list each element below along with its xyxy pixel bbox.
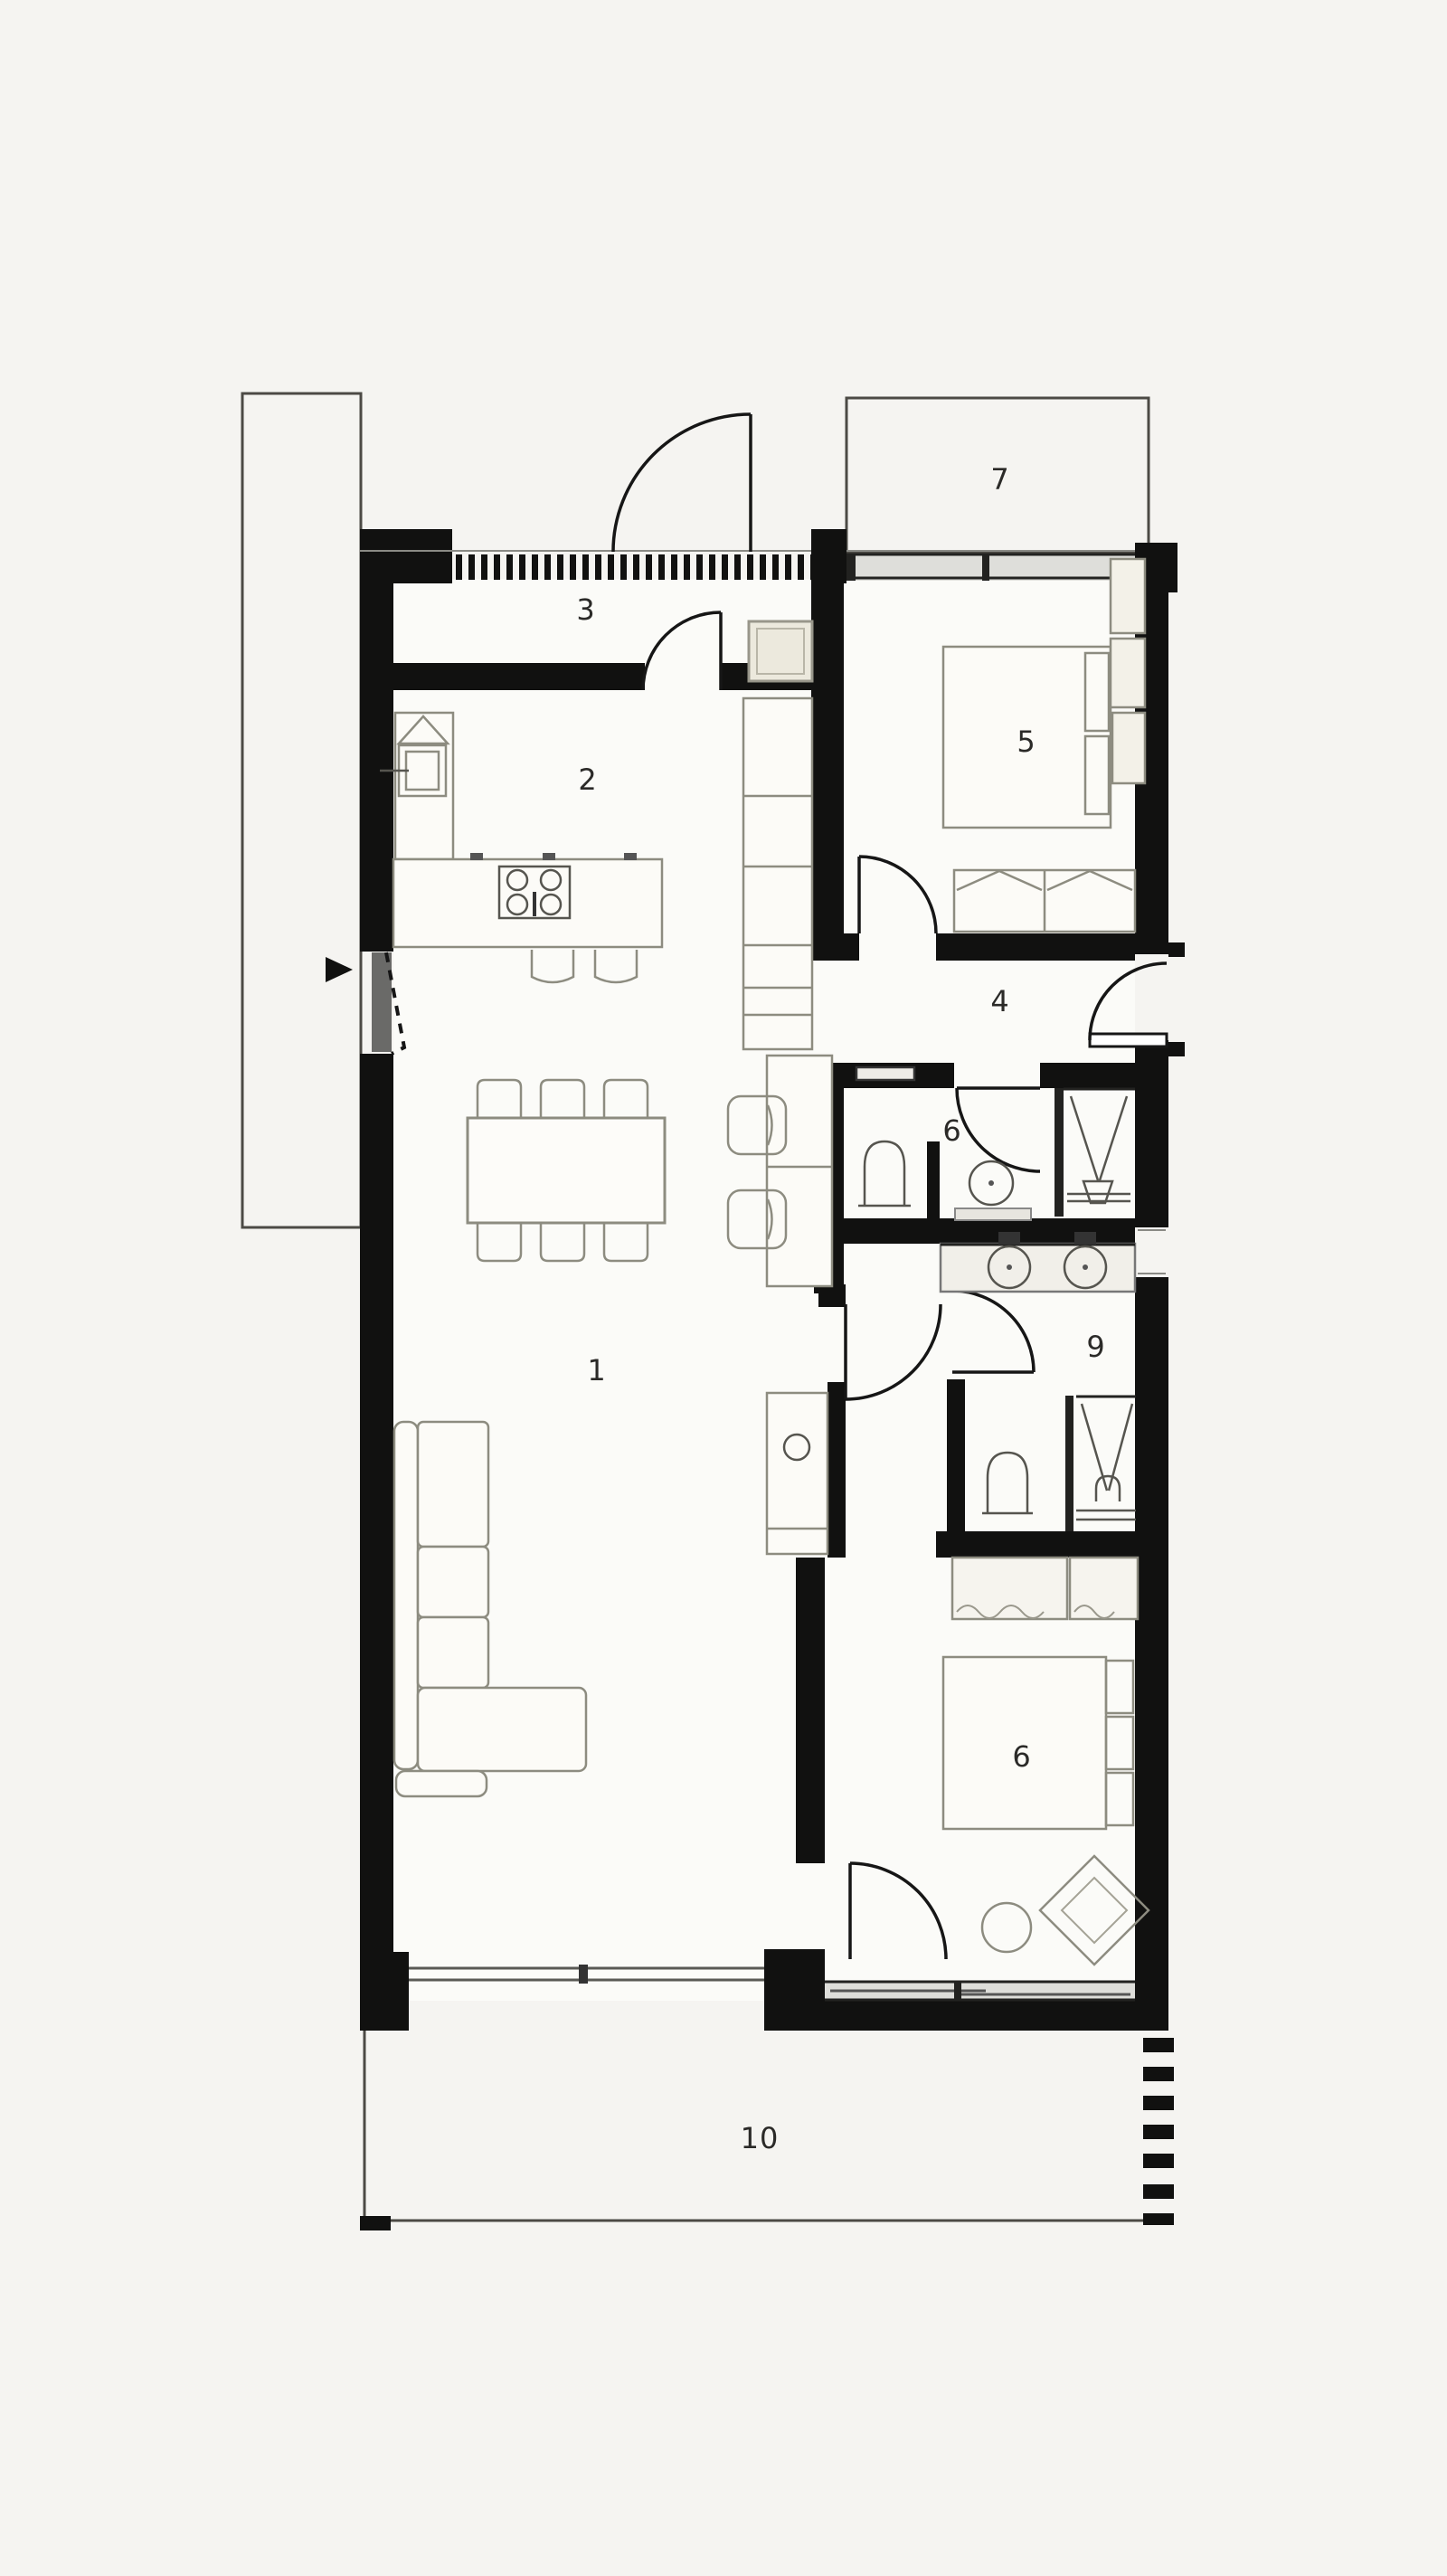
entry-arrow-icon (326, 957, 353, 982)
label-kitchen: 2 (578, 762, 597, 797)
bed-second-icon (943, 1657, 1133, 1829)
window-band-bedroom-south (825, 1981, 1135, 2001)
label-bathroom: 6 (942, 1113, 961, 1148)
floor-plan-page: 1 2 3 4 5 6 7 6 9 10 (0, 0, 1447, 2576)
tall-cabinet-column (743, 698, 812, 1049)
storage-cabinet-lower (767, 1393, 828, 1554)
bathroom-shelf (856, 1067, 914, 1080)
floor-plan-drawing: 1 2 3 4 5 6 7 6 9 10 (0, 0, 1447, 2576)
label-hallway: 4 (990, 984, 1009, 1018)
label-bedroom-second: 6 (1012, 1739, 1031, 1774)
wardrobe-bedroom-second (952, 1558, 1138, 1619)
entry-closet (749, 621, 812, 681)
wardrobe-bedroom-main (954, 870, 1135, 932)
door-main-top (613, 414, 751, 552)
label-bedroom-main: 5 (1017, 724, 1036, 759)
kitchen-island (393, 853, 662, 947)
window-band-bedroom-top (846, 554, 1151, 581)
bedside-column (1111, 559, 1145, 783)
dining-table (468, 1118, 665, 1223)
label-entry-hall: 3 (576, 592, 595, 627)
dashed-property-line (1143, 2038, 1174, 2225)
faucet-icon (1074, 1232, 1096, 1245)
storage-cabinet-upper (767, 1056, 832, 1286)
faucet-icon (998, 1232, 1020, 1245)
access-corridor-outline (242, 393, 361, 1227)
label-bathroom-ensuite: 9 (1086, 1330, 1105, 1364)
label-terrace-top: 7 (990, 462, 1009, 497)
label-living-room: 1 (587, 1353, 606, 1387)
label-terrace-bottom: 10 (741, 2121, 780, 2155)
